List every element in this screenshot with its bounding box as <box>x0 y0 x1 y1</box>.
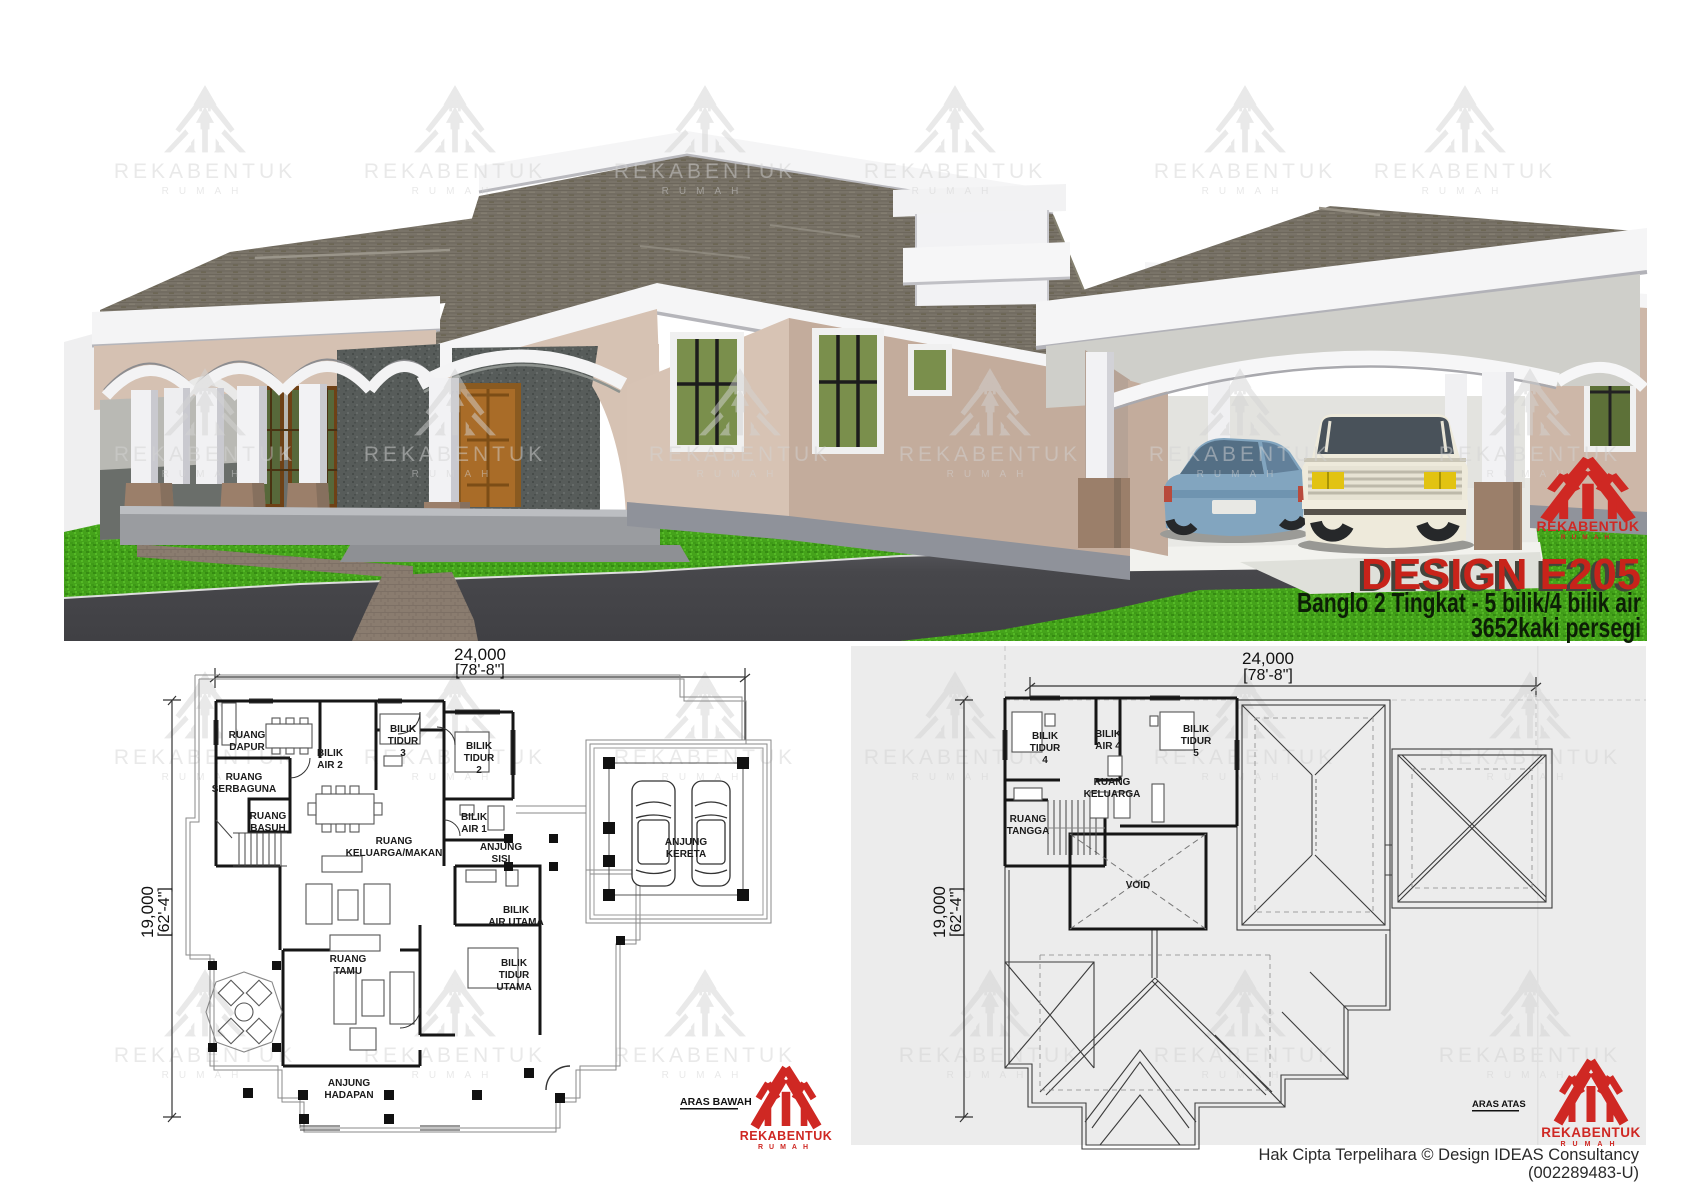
svg-text:RUANG: RUANG <box>1094 777 1131 788</box>
svg-text:AIR UTAMA: AIR UTAMA <box>488 917 543 928</box>
svg-text:VOID: VOID <box>1126 880 1150 891</box>
svg-text:KELUARGA: KELUARGA <box>1084 789 1141 800</box>
svg-text:RUANG: RUANG <box>376 836 413 847</box>
svg-text:ANJUNG: ANJUNG <box>665 837 707 848</box>
svg-text:RUANG: RUANG <box>226 772 263 783</box>
svg-text:AIR 1: AIR 1 <box>461 824 487 835</box>
svg-text:SISI: SISI <box>492 854 511 865</box>
svg-text:3: 3 <box>400 748 406 759</box>
svg-text:3652kaki persegi: 3652kaki persegi <box>1471 612 1641 643</box>
svg-text:RUANG: RUANG <box>250 811 287 822</box>
svg-text:4: 4 <box>1042 755 1048 766</box>
svg-text:2: 2 <box>476 765 482 776</box>
svg-text:[62'-4"]: [62'-4"] <box>156 887 173 937</box>
svg-text:BILIK: BILIK <box>501 958 528 969</box>
svg-text:KERETA: KERETA <box>666 849 706 860</box>
svg-text:RUANG: RUANG <box>1010 814 1047 825</box>
svg-text:TAMU: TAMU <box>334 966 362 977</box>
svg-text:RUMAH: RUMAH <box>1561 534 1615 541</box>
svg-text:BILIK: BILIK <box>390 724 417 735</box>
svg-text:ANJUNG: ANJUNG <box>480 842 522 853</box>
svg-text:Hak Cipta Terpelihara © Desig: Hak Cipta Terpelihara © Design IDEAS Con… <box>1258 1146 1639 1164</box>
svg-text:(002289483-U): (002289483-U) <box>1528 1164 1639 1182</box>
svg-text:BILIK: BILIK <box>503 905 530 916</box>
svg-text:BILIK: BILIK <box>1032 731 1059 742</box>
svg-text:TIDUR: TIDUR <box>388 736 419 747</box>
svg-text:ARAS BAWAH: ARAS BAWAH <box>680 1096 752 1108</box>
svg-text:BASUH: BASUH <box>250 823 286 834</box>
svg-text:24,000: 24,000 <box>1242 649 1294 668</box>
svg-text:TANGGA: TANGGA <box>1007 826 1050 837</box>
svg-text:TIDUR: TIDUR <box>464 753 495 764</box>
svg-text:RUMAH: RUMAH <box>758 1144 814 1151</box>
svg-text:19,000: 19,000 <box>138 886 157 938</box>
svg-text:UTAMA: UTAMA <box>496 982 531 993</box>
svg-text:HADAPAN: HADAPAN <box>324 1090 373 1101</box>
svg-text:REKABENTUK: REKABENTUK <box>740 1129 833 1143</box>
svg-text:BILIK: BILIK <box>1095 729 1122 740</box>
svg-text:ANJUNG: ANJUNG <box>328 1078 370 1089</box>
svg-text:RUANG: RUANG <box>229 730 266 741</box>
svg-text:DAPUR: DAPUR <box>229 742 265 753</box>
svg-text:AIR 4: AIR 4 <box>1095 741 1121 752</box>
svg-text:BILIK: BILIK <box>317 748 344 759</box>
svg-text:REKABENTUK: REKABENTUK <box>1537 518 1640 534</box>
svg-text:5: 5 <box>1193 748 1199 759</box>
svg-text:RUANG: RUANG <box>330 954 367 965</box>
svg-text:[62'-4"]: [62'-4"] <box>948 887 965 937</box>
svg-text:TIDUR: TIDUR <box>499 970 530 981</box>
svg-text:[78'-8"]: [78'-8"] <box>1243 667 1293 684</box>
svg-text:19,000: 19,000 <box>930 886 949 938</box>
svg-text:BILIK: BILIK <box>461 812 488 823</box>
svg-text:KELUARGA/MAKAN: KELUARGA/MAKAN <box>346 848 443 859</box>
svg-text:TIDUR: TIDUR <box>1181 736 1212 747</box>
svg-text:[78'-8"]: [78'-8"] <box>455 662 505 679</box>
svg-text:ARAS ATAS: ARAS ATAS <box>1472 1099 1526 1110</box>
svg-text:AIR 2: AIR 2 <box>317 760 343 771</box>
svg-text:BILIK: BILIK <box>466 741 493 752</box>
svg-text:TIDUR: TIDUR <box>1030 743 1061 754</box>
svg-text:REKABENTUK: REKABENTUK <box>1541 1125 1641 1140</box>
svg-text:BILIK: BILIK <box>1183 724 1210 735</box>
svg-text:SERBAGUNA: SERBAGUNA <box>212 784 276 795</box>
